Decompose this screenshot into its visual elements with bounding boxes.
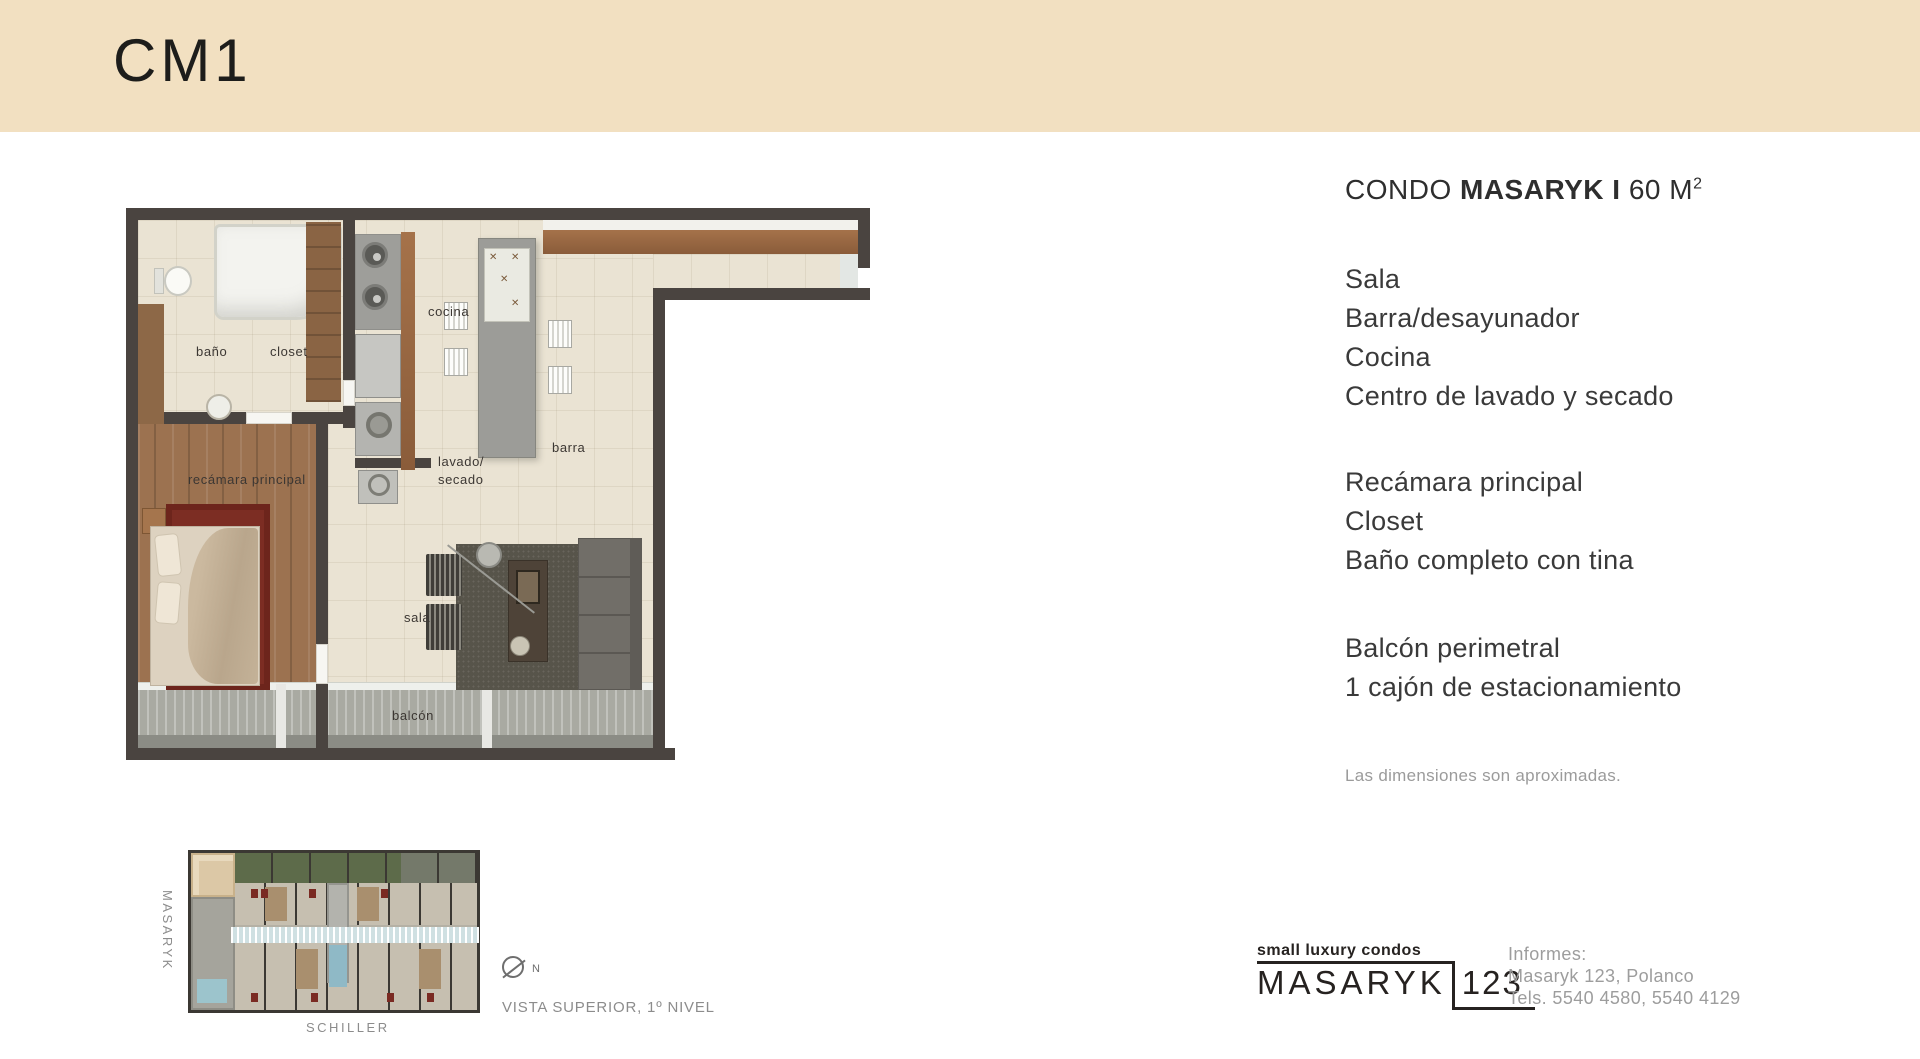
sp-corridor: [231, 927, 479, 943]
unit-code-title: CM1: [113, 26, 252, 95]
bar-stool: [444, 348, 468, 376]
feature-group-extras: Balcón perimetral 1 cajón de estacionami…: [1345, 629, 1682, 707]
headline-area-sup: 2: [1693, 176, 1702, 193]
sp-bed-marker: [427, 993, 434, 1002]
burner-mark: ✕: [511, 252, 519, 263]
contact-line: Masaryk 123, Polanco: [1508, 965, 1741, 987]
sp-unit-tint: [296, 949, 318, 989]
balcony-pillar: [482, 684, 492, 748]
label-bano: baño: [196, 344, 227, 359]
north-compass-icon: [502, 956, 524, 978]
armchair: [426, 604, 462, 650]
wall-bedroom-sala: [316, 424, 328, 644]
sofa-back: [630, 538, 642, 690]
sp-amenity-block: [191, 853, 235, 897]
sp-left-pool: [197, 979, 227, 1003]
corridor-highlight: [543, 220, 858, 230]
sp-bed-marker: [387, 993, 394, 1002]
wall-closet-kitchen: [343, 220, 355, 380]
headline-prefix: CONDO: [1345, 174, 1460, 205]
sp-unit-tint: [419, 949, 441, 989]
sp-roof-terraces: [401, 853, 477, 883]
contact-line: Tels. 5540 4580, 5540 4129: [1508, 987, 1741, 1009]
bed-blanket: [188, 528, 258, 684]
logo-tagline: small luxury condos: [1257, 942, 1535, 960]
sp-bed-marker: [309, 889, 316, 898]
top-banner: [0, 0, 1920, 132]
label-lavado: lavado/: [438, 454, 484, 469]
washer-door: [366, 412, 392, 438]
table-art: [516, 570, 540, 604]
contact-line: Informes:: [1508, 943, 1741, 965]
sp-unit-tint: [357, 887, 379, 921]
fridge: [355, 334, 401, 398]
door-bath: [246, 412, 292, 424]
contact-info: Informes: Masaryk 123, Polanco Tels. 554…: [1508, 943, 1741, 1009]
washbasin: [206, 394, 232, 420]
wall-corridor-end: [858, 208, 870, 268]
entry-corridor-floor: [653, 254, 858, 288]
feature-group-bedroom: Recámara principal Closet Baño completo …: [1345, 463, 1634, 580]
feature-item: 1 cajón de estacionamiento: [1345, 668, 1682, 707]
feature-item: Recámara principal: [1345, 463, 1634, 502]
siteplan-render: [188, 850, 480, 1013]
wall-bottom: [126, 748, 675, 760]
feature-item: Barra/desayunador: [1345, 299, 1674, 338]
wall-bedroom-sala2: [316, 684, 328, 748]
toilet: [164, 266, 192, 296]
stove-burner: [362, 284, 388, 310]
bath-counter: [138, 304, 164, 424]
stove-burner: [362, 242, 388, 268]
armchair: [426, 554, 462, 596]
door-closet: [343, 380, 355, 406]
feature-item: Sala: [1345, 260, 1674, 299]
closet-wardrobe: [306, 222, 341, 402]
bar-stool: [548, 320, 572, 348]
sp-bed-marker: [311, 993, 318, 1002]
wall-top: [126, 208, 870, 220]
entry-glass-panel: [840, 254, 858, 288]
floorplan-render: ✕ ✕ ✕ ✕ baño closet cocina lavado/ secad…: [126, 208, 870, 760]
feature-item: Cocina: [1345, 338, 1674, 377]
label-recamara: recámara principal: [188, 472, 306, 487]
feature-item: Baño completo con tina: [1345, 541, 1634, 580]
logo-name: MASARYK: [1257, 961, 1452, 1010]
label-balcon: balcón: [392, 708, 434, 723]
sp-bed-marker: [381, 889, 388, 898]
floor-lamp: [476, 542, 502, 568]
wall-laundry-stub: [355, 458, 431, 468]
wall-bath-bedroom2: [292, 412, 355, 424]
headline-brand: MASARYK I: [1460, 174, 1629, 205]
street-label-schiller: SCHILLER: [306, 1020, 390, 1035]
feature-group-living: Sala Barra/desayunador Cocina Centro de …: [1345, 260, 1674, 416]
wall-corridor-bottom: [653, 288, 870, 300]
compass-needle: [502, 960, 525, 979]
label-sala: sala: [404, 610, 430, 625]
toilet-tank: [154, 268, 164, 294]
balcony-edge: [138, 735, 653, 748]
label-barra: barra: [552, 440, 585, 455]
logo-wordmark: MASARYK 123: [1257, 961, 1535, 1010]
wall-left: [126, 208, 138, 760]
burner-mark: ✕: [500, 274, 508, 285]
table-bowl: [510, 636, 530, 656]
label-closet: closet: [270, 344, 308, 359]
sofa-seam: [578, 576, 630, 578]
sp-bed-marker: [251, 993, 258, 1002]
pillow: [154, 581, 182, 625]
sp-pool: [329, 945, 347, 987]
feature-item: Balcón perimetral: [1345, 629, 1682, 668]
sp-bed-marker: [261, 889, 268, 898]
street-label-masaryk: MASARYK: [160, 890, 175, 976]
brand-logo: small luxury condos MASARYK 123: [1257, 942, 1535, 1010]
sp-bed-marker: [251, 889, 258, 898]
burner-mark: ✕: [489, 252, 497, 263]
burner-mark: ✕: [511, 298, 519, 309]
label-cocina: cocina: [428, 304, 469, 319]
sp-unit-tint: [265, 887, 287, 921]
balcony-pillar: [276, 684, 286, 748]
entry-wood-shelf: [543, 230, 858, 254]
sofa-seam: [578, 614, 630, 616]
sofa-seam: [578, 652, 630, 654]
north-label: N: [532, 963, 540, 975]
dimensions-disclaimer: Las dimensiones son aproximadas.: [1345, 766, 1621, 786]
feature-item: Closet: [1345, 502, 1634, 541]
wall-right: [653, 300, 665, 748]
siteplan-caption: VISTA SUPERIOR, 1º NIVEL: [502, 999, 715, 1016]
door-bedroom: [316, 644, 328, 684]
label-secado: secado: [438, 472, 484, 487]
dryer-door: [368, 474, 390, 496]
bar-stool: [548, 366, 572, 394]
headline-area: 60 M: [1629, 174, 1693, 205]
condo-headline: CONDO MASARYK I 60 M2: [1345, 174, 1703, 206]
feature-item: Centro de lavado y secado: [1345, 377, 1674, 416]
pillow: [154, 533, 182, 577]
kitchen-counter-wood: [401, 232, 415, 470]
